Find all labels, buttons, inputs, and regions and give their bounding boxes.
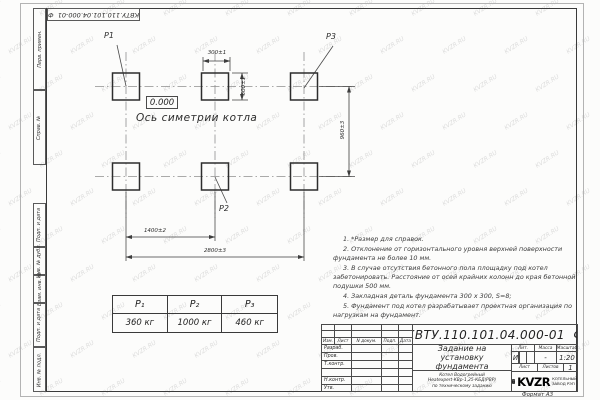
elevation-mark: 0.000 [146,96,178,109]
load-table-value: 1000 кг [168,314,223,332]
doc-title-line: Задание на [438,344,487,353]
dim-row-spacing: 960±3 [340,115,346,145]
dim-total-width: 2800±3 [185,248,245,254]
load-table-header: P₂ [168,296,223,314]
note-line: 2. Отклонение от горизонтального уровня … [333,245,585,263]
title-block: Изм. Лист N докум. Подп. Дата Разраб. Пр… [321,324,578,392]
note-line: 1. *Размер для справок. [333,235,585,244]
label-p1: P1 [104,31,114,40]
axis-of-symmetry-label: Ось симетрии котла [136,112,257,124]
doc-subtitle: Котел Водогрейный Heatexpert-КВр-1,25-КБ… [412,370,512,392]
kvzr-logo-icon [512,375,515,388]
sig-cell [351,384,382,392]
organization-line: ЗАВОД РЭП [552,382,577,387]
doc-subtitle-line: по техническому заданию [432,384,492,389]
note-line: 4. Закладная деталь фундамента 300 x 300… [333,292,585,301]
centerlines [95,52,352,218]
note-line: 3. В случае отсутствия бетонного пола пл… [333,264,585,291]
label-p3: P3 [326,32,336,41]
load-table: P₁ P₂ P₃ 360 кг 1000 кг 460 кг [112,295,278,333]
load-table-header: P₃ [222,296,277,314]
logo-text: KVZR [517,375,550,389]
sig-cell [398,384,413,392]
elevation-value: 0.000 [150,98,174,108]
dim-col-spacing: 1400±2 [125,228,185,234]
load-table-value: 460 кг [222,314,277,332]
row-utv: Утв. [321,384,352,392]
load-table-header: P₁ [113,296,168,314]
load-table-value: 360 кг [113,314,168,332]
organization-name: КОТЕЛЬНЫЙ ЗАВОД РЭП [552,377,577,386]
dim-block-width: 300±1 [197,50,237,56]
technical-notes: 1. *Размер для справок. 2. Отклонение от… [333,235,585,321]
leader-lines [117,45,333,203]
doc-title-line: установку [440,353,483,362]
sig-cell [381,384,399,392]
format-label: Формат А3 [497,392,578,398]
organization-cell: KVZR КОТЕЛЬНЫЙ ЗАВОД РЭП [511,371,578,392]
dim-block-height: 300±1 [241,71,247,101]
doc-title: Задание на установку фундамента [412,344,512,371]
label-p2: P2 [219,204,229,213]
note-line: 5. Фундамент под котел разрабатывает про… [333,302,585,320]
doc-number: КВТУ.110.101.04.000-01 Ф [412,324,578,345]
